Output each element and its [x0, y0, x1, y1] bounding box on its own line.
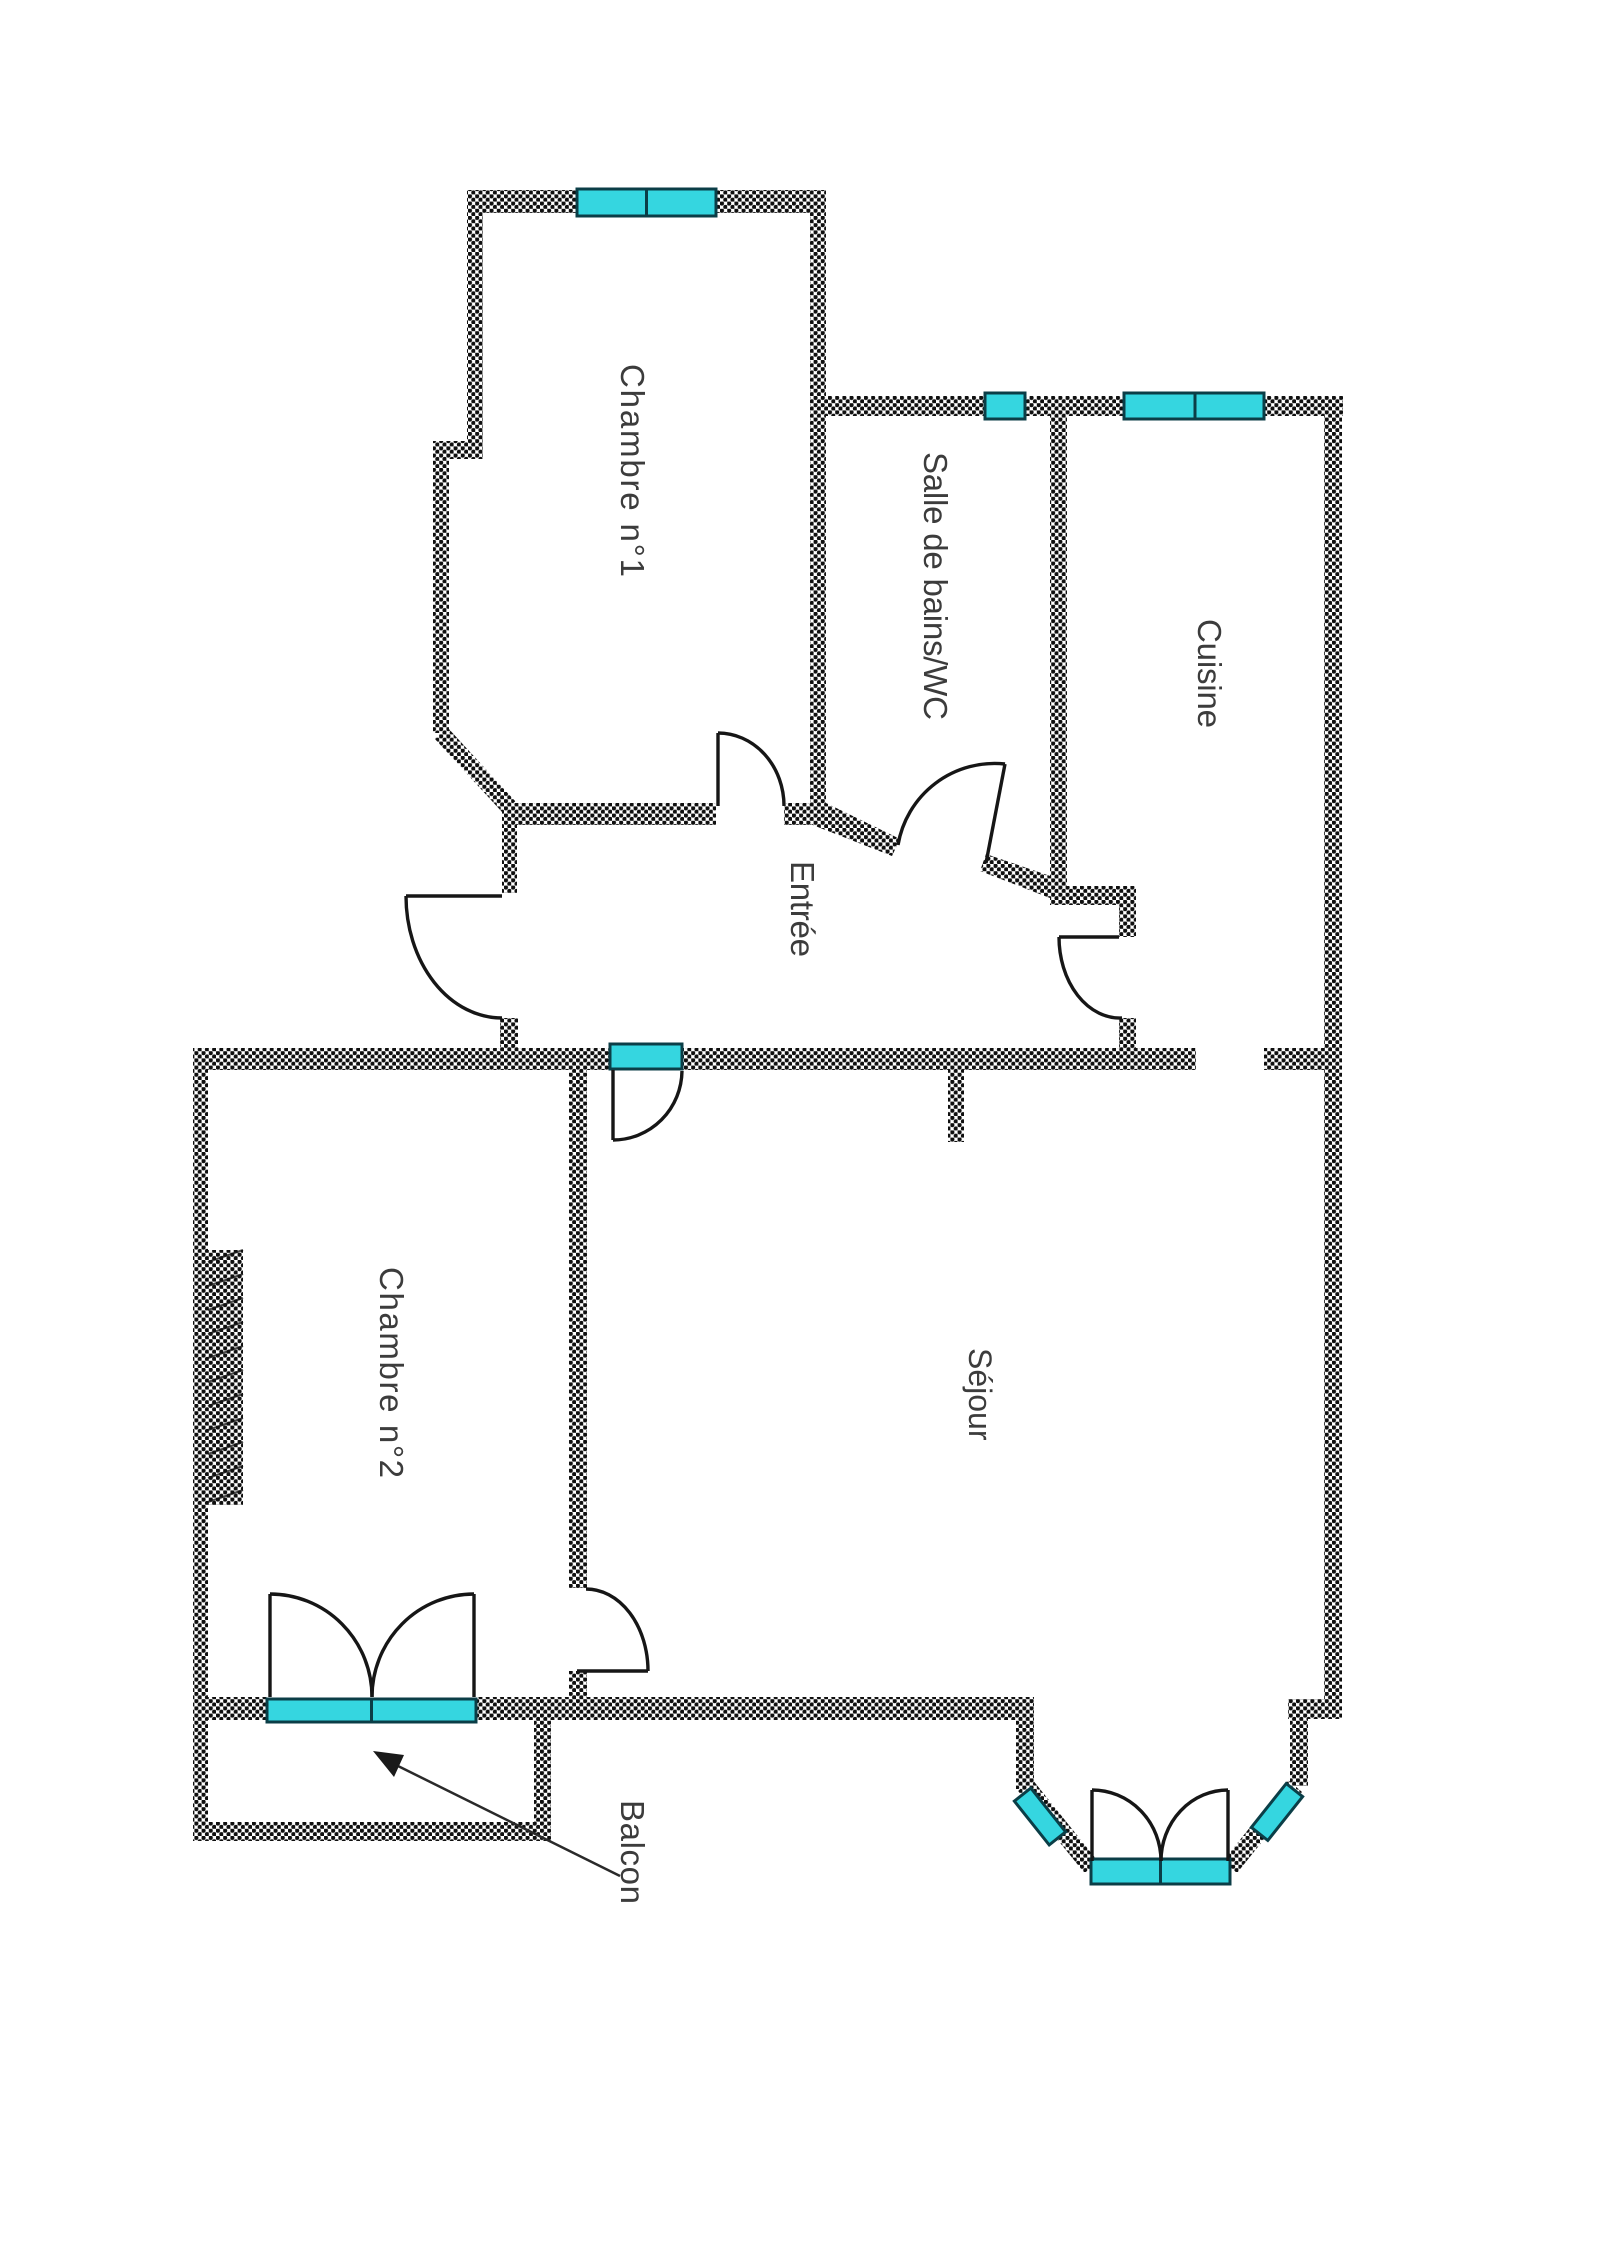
svg-text:Entrée: Entrée	[784, 861, 821, 957]
svg-text:Chambre n°1: Chambre n°1	[614, 364, 651, 577]
svg-text:Balcon: Balcon	[614, 1800, 651, 1904]
svg-text:Séjour: Séjour	[962, 1348, 998, 1441]
svg-text:Cuisine: Cuisine	[1191, 619, 1228, 728]
svg-text:Chambre n°2: Chambre n°2	[373, 1267, 410, 1478]
svg-text:Salle de bains/WC: Salle de bains/WC	[917, 452, 954, 720]
